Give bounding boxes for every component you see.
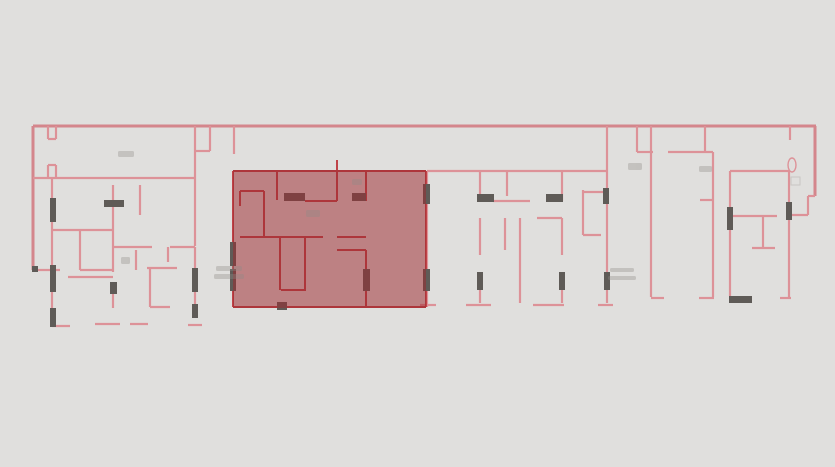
door-marker [604,272,610,290]
fixture-oval [788,158,796,172]
door-marker [50,308,56,327]
door-marker [50,265,56,292]
highlighted-unit-overlay[interactable] [233,170,426,308]
door-marker [192,304,198,318]
door-marker [477,194,494,202]
door-marker [104,200,124,207]
annotation-smudge [352,179,362,185]
floorplan-svg [0,0,835,467]
door-marker [32,266,38,272]
door-marker [727,207,733,230]
door-marker [50,198,56,222]
annotation-smudge [118,151,134,157]
annotation-smudge [121,257,130,264]
door-marker [559,272,565,290]
door-marker [729,296,752,303]
door-marker [546,194,563,202]
annotation-smudge [216,266,242,271]
door-marker [110,282,117,294]
door-marker [603,188,609,204]
door-marker [786,202,792,220]
door-marker [192,268,198,292]
annotation-smudge [306,210,320,217]
fixture-box [791,177,800,185]
annotation-smudge [699,166,712,172]
annotation-smudge [628,163,642,170]
floorplan-viewport [0,0,835,467]
annotation-smudge [214,274,244,279]
door-marker [477,272,483,290]
annotation-smudge [608,276,636,280]
annotation-smudge [610,268,634,272]
